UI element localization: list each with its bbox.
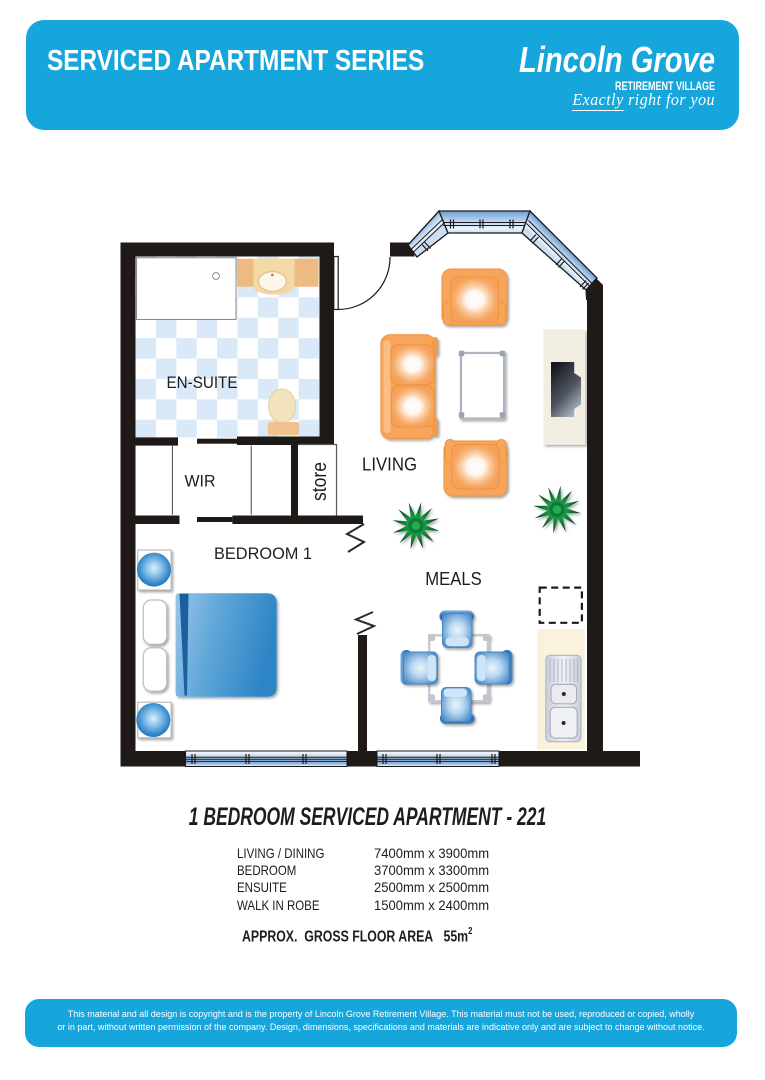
svg-text:EN-SUITE: EN-SUITE [167,373,238,392]
svg-text:MEALS: MEALS [425,569,482,589]
svg-text:LIVING: LIVING [362,455,417,475]
svg-text:WIR: WIR [185,472,216,491]
svg-text:BEDROOM 1: BEDROOM 1 [214,544,312,563]
svg-text:store: store [309,462,331,501]
